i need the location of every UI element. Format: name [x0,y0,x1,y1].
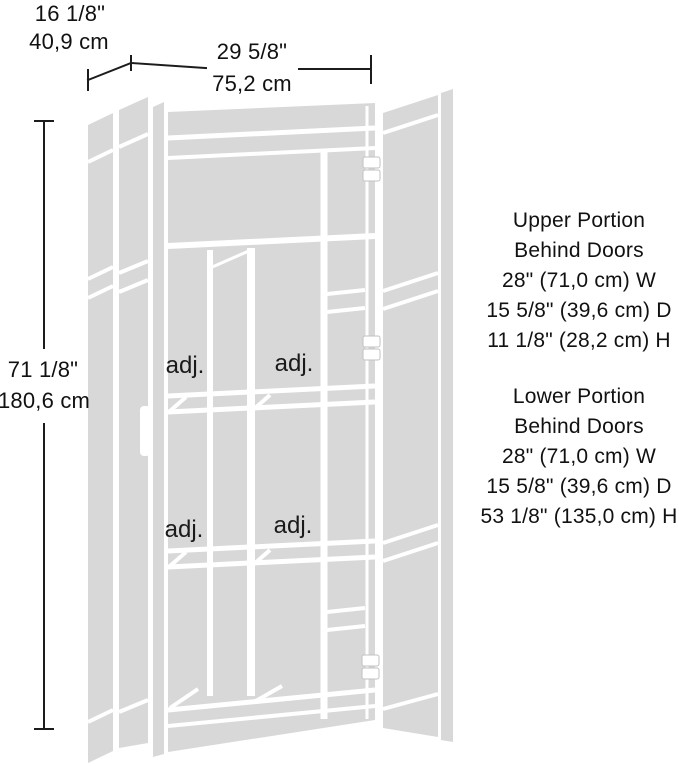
diagram-canvas: 16 1/8" 40,9 cm 29 5/8" 75,2 cm 71 1/8" … [0,0,679,766]
lower-portion-title-line2: Behind Doors [480,412,677,442]
left-door [88,97,150,763]
lower-portion-width: 28" (71,0 cm) W [480,442,677,472]
depth-dimension-line [88,56,131,90]
depth-dimension-inches: 16 1/8" [35,3,105,25]
height-dimension-cm: 180,6 cm [0,390,90,412]
left-door-handle-recess [140,406,150,456]
adj-shelf-label-upper-right: adj. [275,350,314,378]
lower-portion-annotation: Lower Portion Behind Doors 28" (71,0 cm)… [480,382,677,532]
upper-portion-annotation: Upper Portion Behind Doors 28" (71,0 cm)… [486,206,671,356]
height-dimension-line [35,121,53,729]
cabinet-interior [168,103,375,752]
width-dimension-inches: 29 5/8" [217,41,287,63]
upper-portion-title-line2: Behind Doors [486,236,671,266]
upper-portion-title-line1: Upper Portion [486,206,671,236]
height-dimension-inches: 71 1/8" [8,359,78,381]
upper-portion-height: 11 1/8" (28,2 cm) H [486,326,671,356]
width-dimension-cm: 75,2 cm [212,73,292,95]
lower-portion-title-line1: Lower Portion [480,382,677,412]
adj-shelf-label-lower-right: adj. [274,512,313,540]
depth-dimension-cm: 40,9 cm [29,31,109,53]
adj-shelf-label-upper-left: adj. [166,352,205,380]
lower-portion-height: 53 1/8" (135,0 cm) H [480,502,677,532]
left-side-wall [153,102,164,757]
adj-shelf-label-lower-left: adj. [165,516,204,544]
cabinet-carcass [153,102,375,757]
upper-portion-width: 28" (71,0 cm) W [486,266,671,296]
upper-portion-depth: 15 5/8" (39,6 cm) D [486,296,671,326]
lower-portion-depth: 15 5/8" (39,6 cm) D [480,472,677,502]
right-door [383,89,453,742]
